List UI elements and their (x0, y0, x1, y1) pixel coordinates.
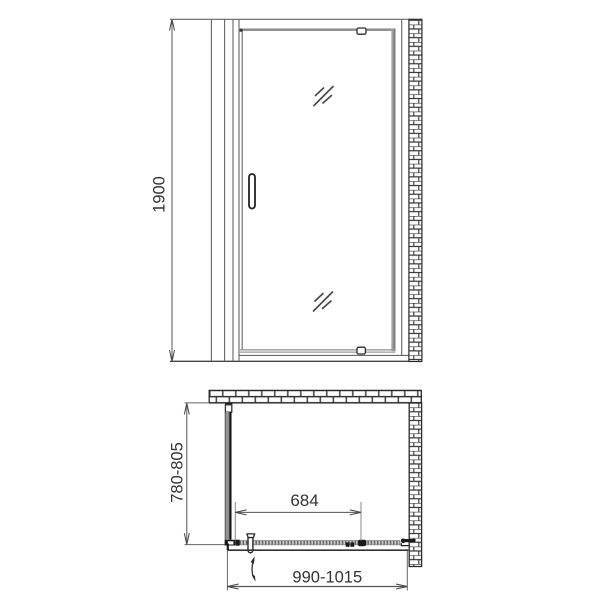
svg-text:1900: 1900 (151, 176, 169, 213)
svg-text:780-805: 780-805 (169, 442, 187, 503)
svg-text:684: 684 (290, 491, 318, 510)
svg-text:990-1015: 990-1015 (292, 569, 362, 587)
